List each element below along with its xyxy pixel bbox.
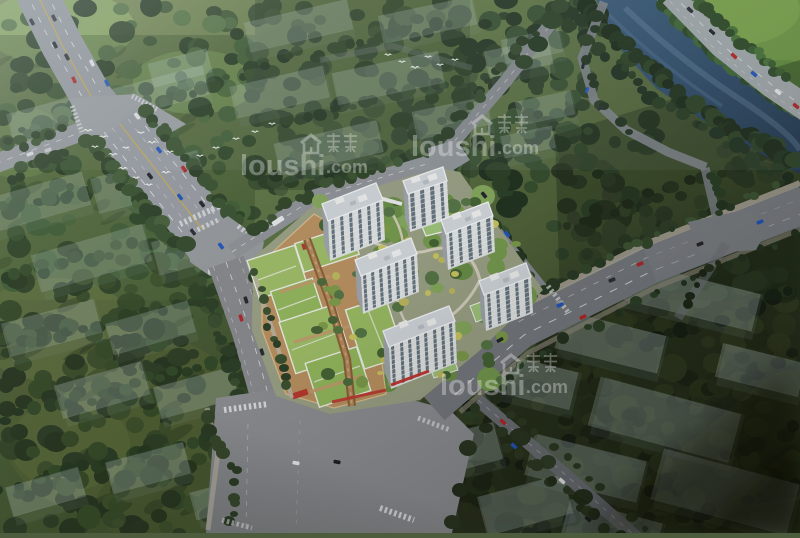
svg-text:loushi: loushi <box>440 370 525 402</box>
svg-text:.com: .com <box>497 138 539 158</box>
svg-text:loushi: loushi <box>240 150 325 182</box>
svg-text:.com: .com <box>526 377 568 397</box>
svg-text:loushi: loushi <box>411 131 496 163</box>
svg-text:.com: .com <box>326 157 368 177</box>
